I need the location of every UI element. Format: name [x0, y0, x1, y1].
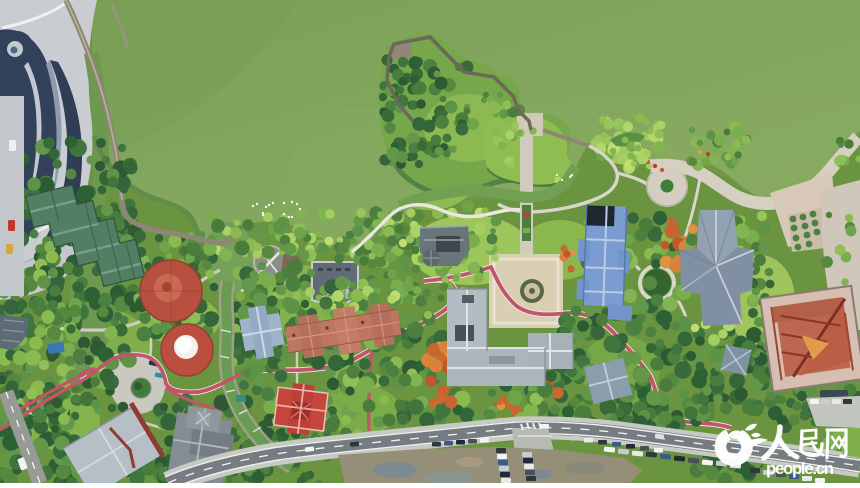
svg-text:people.cn: people.cn [766, 459, 834, 478]
